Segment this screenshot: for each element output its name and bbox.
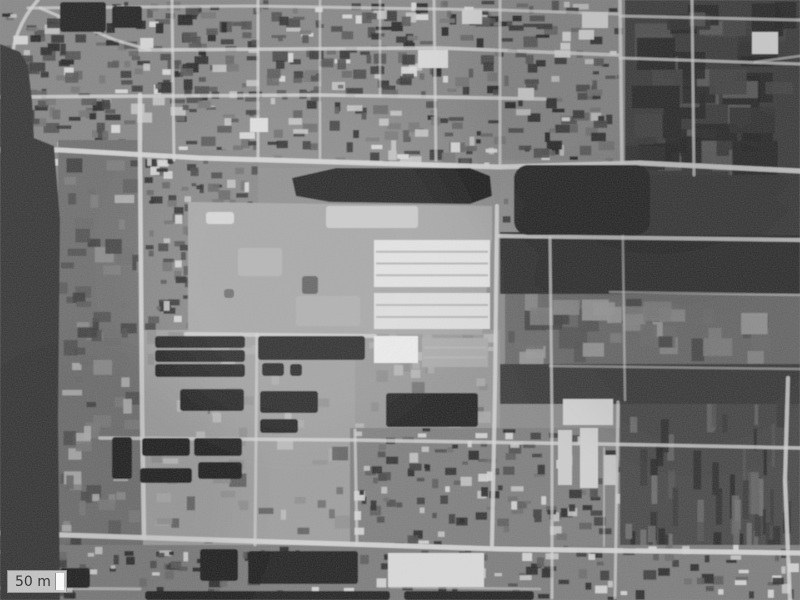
aerial-photo[interactable]: [0, 0, 800, 600]
film-grain: [0, 0, 800, 600]
scale-bar-tick: [55, 573, 64, 590]
scale-bar: 50 m: [7, 570, 67, 593]
scale-bar-label: 50 m: [15, 575, 51, 589]
map-viewport[interactable]: 50 m: [0, 0, 800, 600]
